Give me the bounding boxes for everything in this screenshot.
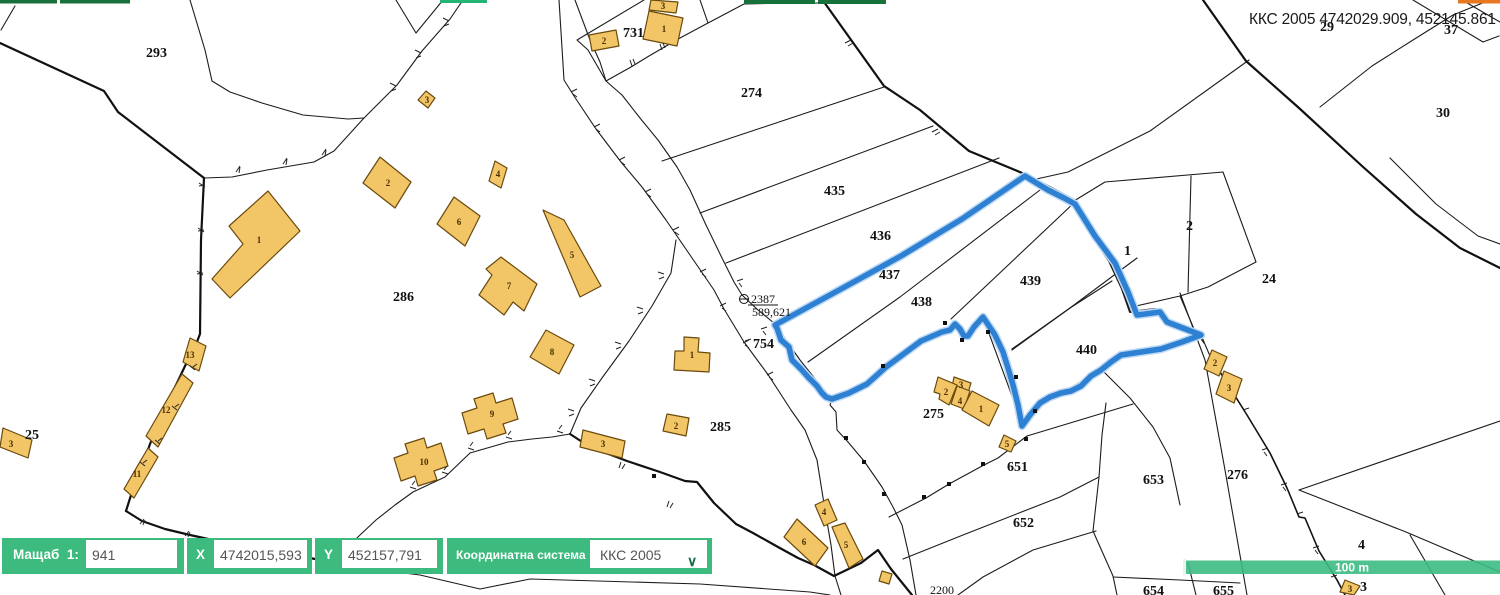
svg-text:13: 13 (186, 350, 196, 360)
svg-text:5: 5 (570, 250, 575, 260)
svg-text:652: 652 (1013, 516, 1034, 531)
svg-text:2: 2 (944, 387, 949, 397)
svg-text:274: 274 (741, 86, 762, 101)
svg-text:651: 651 (1007, 460, 1028, 475)
svg-text:12: 12 (162, 405, 172, 415)
svg-text:731: 731 (623, 26, 644, 41)
svg-text:438: 438 (911, 295, 932, 310)
svg-text:435: 435 (824, 184, 845, 199)
svg-text:754: 754 (753, 337, 774, 352)
svg-text:1: 1 (662, 24, 667, 34)
svg-text:2: 2 (674, 421, 679, 431)
svg-text:285: 285 (710, 420, 731, 435)
svg-text:10: 10 (420, 457, 430, 467)
svg-text:1: 1 (690, 350, 695, 360)
svg-text:2: 2 (602, 36, 607, 46)
svg-text:655: 655 (1213, 584, 1234, 595)
svg-text:2: 2 (1186, 219, 1193, 234)
svg-text:436: 436 (870, 229, 891, 244)
svg-text:440: 440 (1076, 343, 1097, 358)
svg-text:25: 25 (25, 428, 39, 443)
svg-text:437: 437 (879, 268, 900, 283)
svg-text:276: 276 (1227, 468, 1248, 483)
svg-text:100 m: 100 m (1335, 561, 1369, 575)
svg-text:654: 654 (1143, 584, 1164, 595)
svg-text:1: 1 (979, 404, 984, 414)
svg-text:1: 1 (257, 235, 262, 245)
svg-text:2: 2 (386, 178, 391, 188)
svg-text:4: 4 (958, 396, 963, 406)
svg-text:439: 439 (1020, 274, 1041, 289)
svg-text:6: 6 (802, 537, 807, 547)
svg-text:286: 286 (393, 290, 414, 305)
svg-text:2387: 2387 (751, 292, 775, 306)
svg-text:6: 6 (457, 217, 462, 227)
svg-text:3: 3 (601, 439, 606, 449)
svg-text:293: 293 (146, 46, 167, 61)
svg-text:7: 7 (507, 281, 512, 291)
svg-text:275: 275 (923, 407, 944, 422)
svg-text:ККС 2005 4742029.909, 452145.8: ККС 2005 4742029.909, 452145.861 (1249, 11, 1496, 28)
svg-text:2200: 2200 (930, 583, 954, 595)
svg-text:30: 30 (1436, 106, 1450, 121)
svg-text:3: 3 (425, 95, 430, 105)
svg-text:5: 5 (1005, 439, 1010, 449)
svg-text:1: 1 (1124, 244, 1131, 259)
svg-text:3: 3 (9, 439, 14, 449)
svg-text:8: 8 (550, 347, 555, 357)
svg-text:11: 11 (133, 469, 142, 479)
svg-text:3: 3 (1348, 584, 1353, 594)
svg-text:3: 3 (1227, 383, 1232, 393)
svg-text:9: 9 (490, 409, 495, 419)
svg-text:4: 4 (496, 169, 501, 179)
svg-text:24: 24 (1262, 272, 1276, 287)
svg-text:653: 653 (1143, 473, 1164, 488)
svg-text:2: 2 (1213, 358, 1218, 368)
svg-text:589,621: 589,621 (752, 305, 791, 319)
svg-text:4: 4 (822, 507, 827, 517)
svg-text:3: 3 (1360, 580, 1367, 595)
svg-text:3: 3 (661, 1, 666, 11)
svg-text:4: 4 (1358, 538, 1365, 553)
svg-text:5: 5 (844, 540, 849, 550)
svg-text:3: 3 (959, 380, 964, 390)
